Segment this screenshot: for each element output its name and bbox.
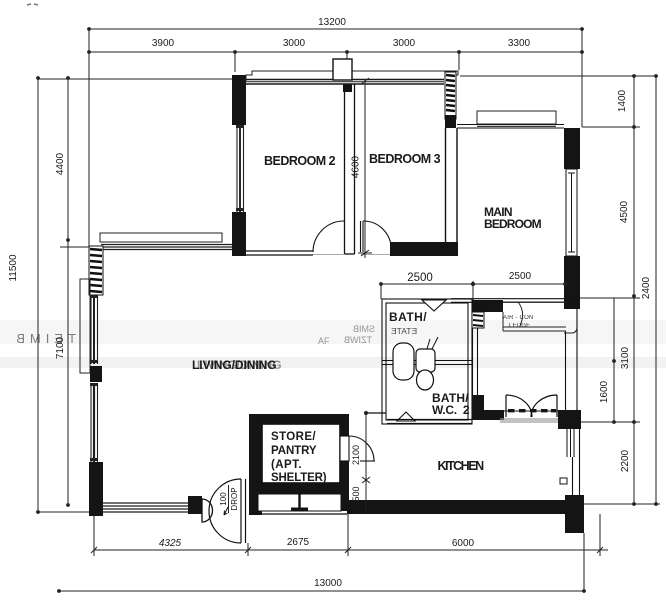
svg-text:2200: 2200	[620, 449, 631, 472]
svg-text:LIVING/DINING: LIVING/DINING	[197, 358, 282, 372]
svg-text:BEDROOM: BEDROOM	[484, 217, 542, 231]
svg-text:1600: 1600	[599, 380, 610, 403]
svg-text:SHELTER): SHELTER)	[271, 472, 327, 484]
svg-text:BEDROOM 3: BEDROOM 3	[369, 152, 441, 166]
svg-text:W.C. 2: W.C. 2	[432, 403, 470, 417]
svg-text:13000: 13000	[314, 578, 342, 589]
svg-text:4500: 4500	[619, 200, 630, 223]
svg-text:ƎTATƎ: ƎTATƎ	[391, 326, 417, 336]
svg-text:BATH/: BATH/	[389, 310, 427, 324]
svg-text:2100: 2100	[351, 445, 361, 465]
svg-text:4600: 4600	[351, 155, 362, 178]
svg-text:4400: 4400	[55, 152, 66, 175]
svg-text:PANTRY: PANTRY	[271, 445, 317, 457]
svg-text:3900: 3900	[152, 38, 175, 49]
svg-text:3100: 3100	[620, 346, 631, 369]
svg-text:TEIMB: TEIMB	[11, 331, 76, 346]
svg-text:1400: 1400	[617, 89, 628, 112]
svg-text:6000: 6000	[452, 538, 475, 549]
svg-text:TZIWB: TZIWB	[344, 335, 372, 345]
svg-text:AF: AF	[318, 336, 330, 346]
svg-text:SMIB: SMIB	[353, 324, 375, 334]
svg-text:LEDGE: LEDGE	[509, 323, 530, 329]
svg-text:(APT.: (APT.	[271, 459, 302, 471]
svg-text:STORE/: STORE/	[271, 431, 316, 443]
svg-text:2500: 2500	[407, 272, 433, 284]
svg-text:11500: 11500	[8, 254, 19, 282]
svg-text:13200: 13200	[318, 17, 346, 28]
svg-text:2675: 2675	[287, 537, 310, 548]
svg-text:2500: 2500	[509, 271, 532, 282]
svg-text:3000: 3000	[393, 38, 416, 49]
svg-text:2400: 2400	[641, 276, 652, 299]
svg-text:AIR - CON: AIR - CON	[503, 315, 533, 321]
svg-text:4325: 4325	[159, 538, 182, 549]
svg-text:DROP: DROP	[230, 487, 239, 510]
svg-text:KITCHEN: KITCHEN	[438, 459, 485, 473]
svg-text:BEDROOM 2: BEDROOM 2	[264, 154, 336, 168]
svg-text:3000: 3000	[283, 38, 306, 49]
svg-text:100: 100	[219, 492, 228, 506]
svg-text:3300: 3300	[508, 38, 531, 49]
svg-text:500: 500	[351, 486, 361, 501]
